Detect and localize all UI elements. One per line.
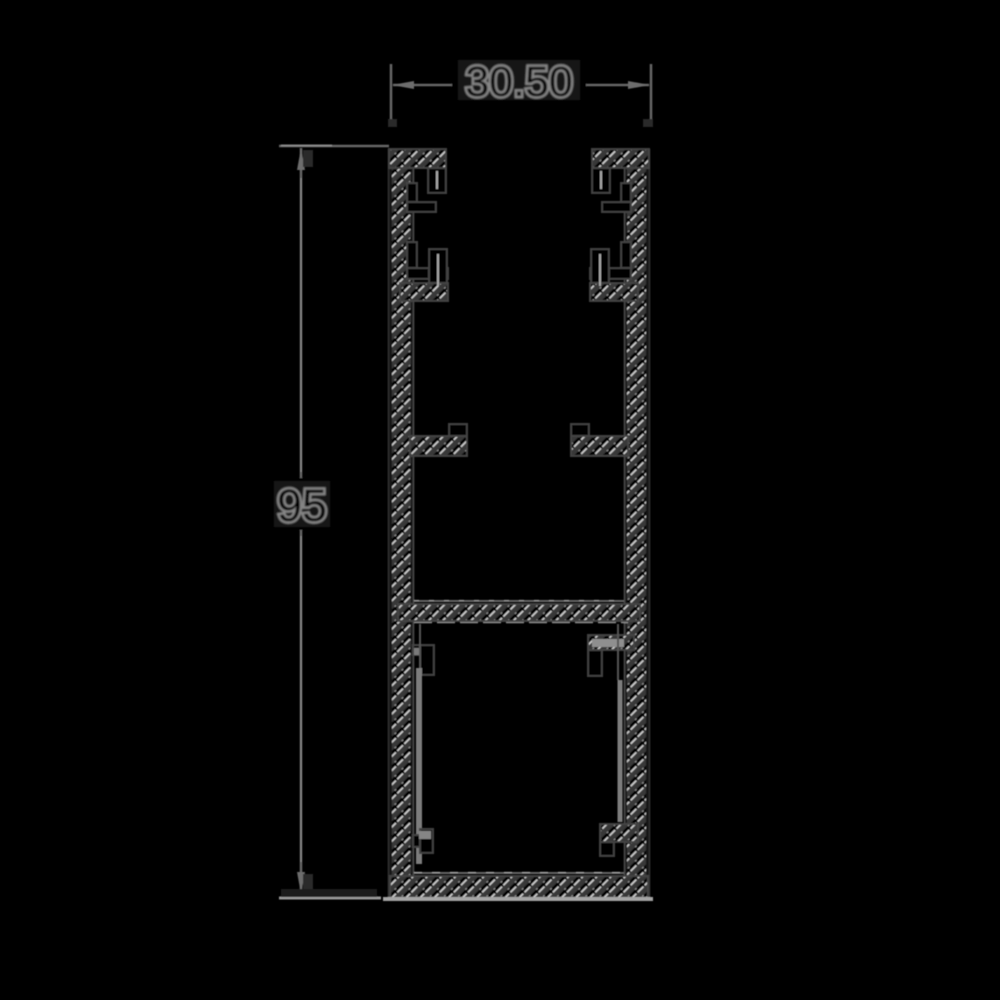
svg-text:30.50: 30.50: [465, 58, 573, 106]
svg-text:95: 95: [277, 480, 327, 531]
